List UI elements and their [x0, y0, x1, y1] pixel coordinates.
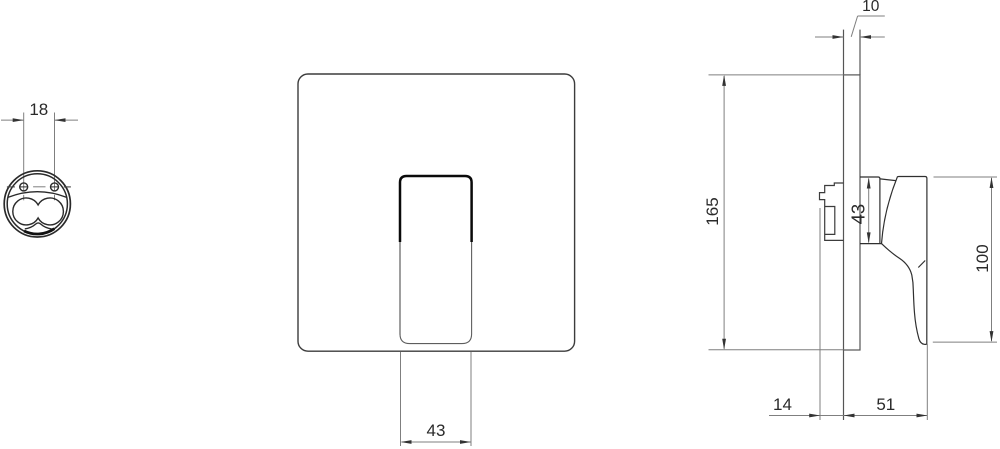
svg-text:51: 51: [876, 395, 895, 414]
svg-text:43: 43: [427, 421, 446, 440]
svg-text:165: 165: [703, 197, 722, 225]
svg-text:100: 100: [973, 244, 992, 272]
svg-text:14: 14: [773, 395, 792, 414]
svg-text:43: 43: [847, 204, 868, 225]
svg-text:10: 10: [862, 0, 880, 15]
svg-text:18: 18: [29, 100, 48, 119]
